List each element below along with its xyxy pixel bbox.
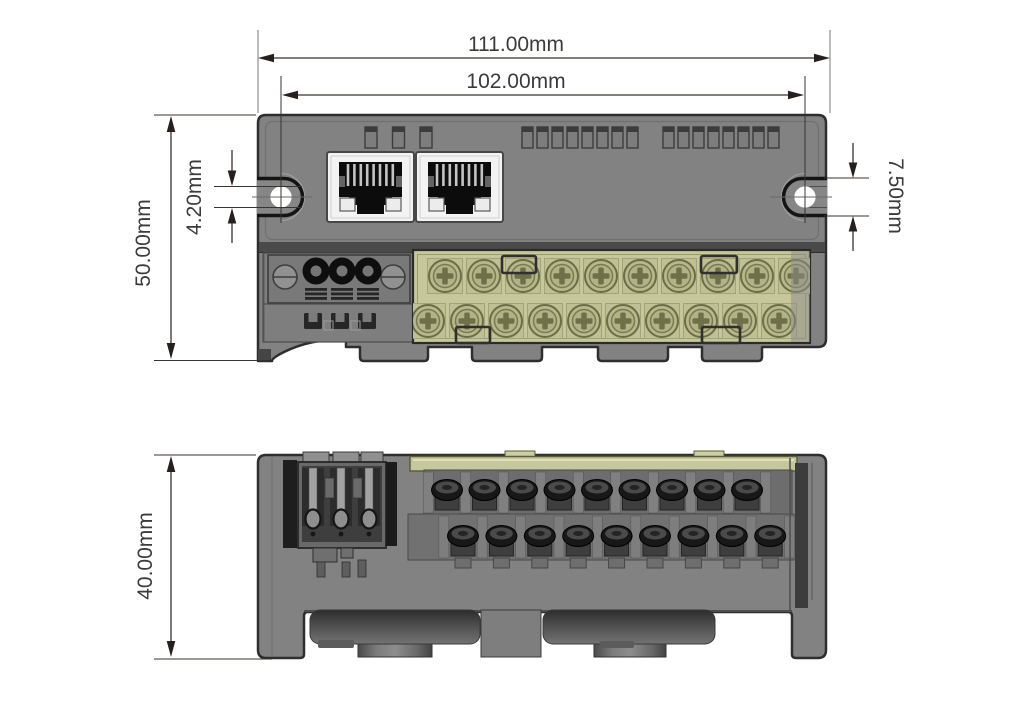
dim-front-height: 50.00mm	[132, 115, 268, 361]
side-terminal-screw	[563, 526, 594, 557]
side-terminal-screw	[732, 480, 763, 511]
screw-tab	[724, 558, 740, 568]
screw-tab	[493, 558, 509, 568]
dim-label-overall-width: 111.00mm	[468, 33, 564, 56]
dim-label-side-height: 40.00mm	[134, 512, 157, 600]
screw-tab	[455, 558, 471, 568]
foot-pad-2	[543, 610, 715, 644]
side-terminal-screw	[601, 526, 632, 557]
power-screw-left	[273, 265, 297, 289]
terminal-screw	[623, 259, 658, 294]
terminal-block-end-shade	[791, 251, 810, 342]
side-terminal-screw	[524, 526, 555, 557]
side-terminal-screw	[486, 526, 517, 557]
terminal-screw	[489, 304, 524, 339]
side-terminal-screw	[469, 480, 500, 511]
dim-ear-slot-height: 7.50mm	[824, 143, 907, 251]
side-terminal-screw	[755, 526, 786, 557]
screw-tab	[609, 558, 625, 568]
terminal-screw	[606, 304, 641, 339]
side-terminal-screw	[544, 480, 575, 511]
side-terminal-screw	[657, 480, 688, 511]
screw-tab	[762, 558, 778, 568]
terminal-screw	[701, 259, 736, 294]
terminal-screw	[411, 304, 446, 339]
side-terminal-screw	[448, 526, 479, 557]
side-terminal-screw	[619, 480, 650, 511]
terminal-screw	[528, 304, 563, 339]
front-left-corner-block	[258, 349, 271, 360]
side-terminal-screw	[716, 526, 747, 557]
terminal-screw	[740, 259, 775, 294]
terminal-block	[411, 250, 814, 343]
side-terminal-screw	[678, 526, 709, 557]
terminal-screw	[584, 259, 619, 294]
connector-pins	[302, 468, 380, 536]
foot-pad-1	[310, 610, 480, 644]
dim-side-height: 40.00mm	[134, 455, 272, 659]
screw-tab	[647, 558, 663, 568]
side-terminal-screw	[507, 480, 538, 511]
drawing-canvas: 111.00mm 102.00mm 50.00mm 4.20mm	[0, 0, 1030, 712]
side-view	[258, 451, 826, 658]
ethernet-port-2	[416, 152, 503, 222]
screw-tab	[532, 558, 548, 568]
dim-label-hole-spacing: 102.00mm	[466, 70, 565, 93]
dim-label-front-height: 50.00mm	[132, 199, 155, 287]
power-clips	[304, 313, 376, 329]
dimension-drawing-svg: 111.00mm 102.00mm 50.00mm 4.20mm	[0, 0, 1030, 712]
power-connector	[263, 253, 413, 342]
side-terminal-screw	[640, 526, 671, 557]
terminal-screw	[467, 259, 502, 294]
terminal-screw	[428, 259, 463, 294]
side-left-shadow	[283, 460, 297, 548]
dim-label-ear-slot-height: 7.50mm	[884, 158, 907, 234]
terminal-screw	[545, 259, 580, 294]
terminal-screw	[645, 304, 680, 339]
screw-tab	[570, 558, 586, 568]
center-post	[481, 610, 541, 657]
side-terminal-screw	[432, 480, 463, 511]
screw-tab	[685, 558, 701, 568]
din-feet	[304, 610, 792, 657]
ethernet-port-1	[327, 152, 414, 222]
terminal-screw	[567, 304, 602, 339]
connector-pin	[309, 468, 317, 514]
connector-pin	[365, 468, 373, 514]
power-screw-right	[381, 265, 405, 289]
side-terminal-screw	[694, 480, 725, 511]
dim-label-slot-width: 4.20mm	[183, 159, 206, 235]
connector-pin	[337, 468, 345, 514]
front-view	[252, 115, 832, 361]
side-terminal-screw	[582, 480, 613, 511]
terminal-screw	[662, 259, 697, 294]
vent-slots	[365, 127, 779, 148]
power-poles	[303, 258, 382, 300]
